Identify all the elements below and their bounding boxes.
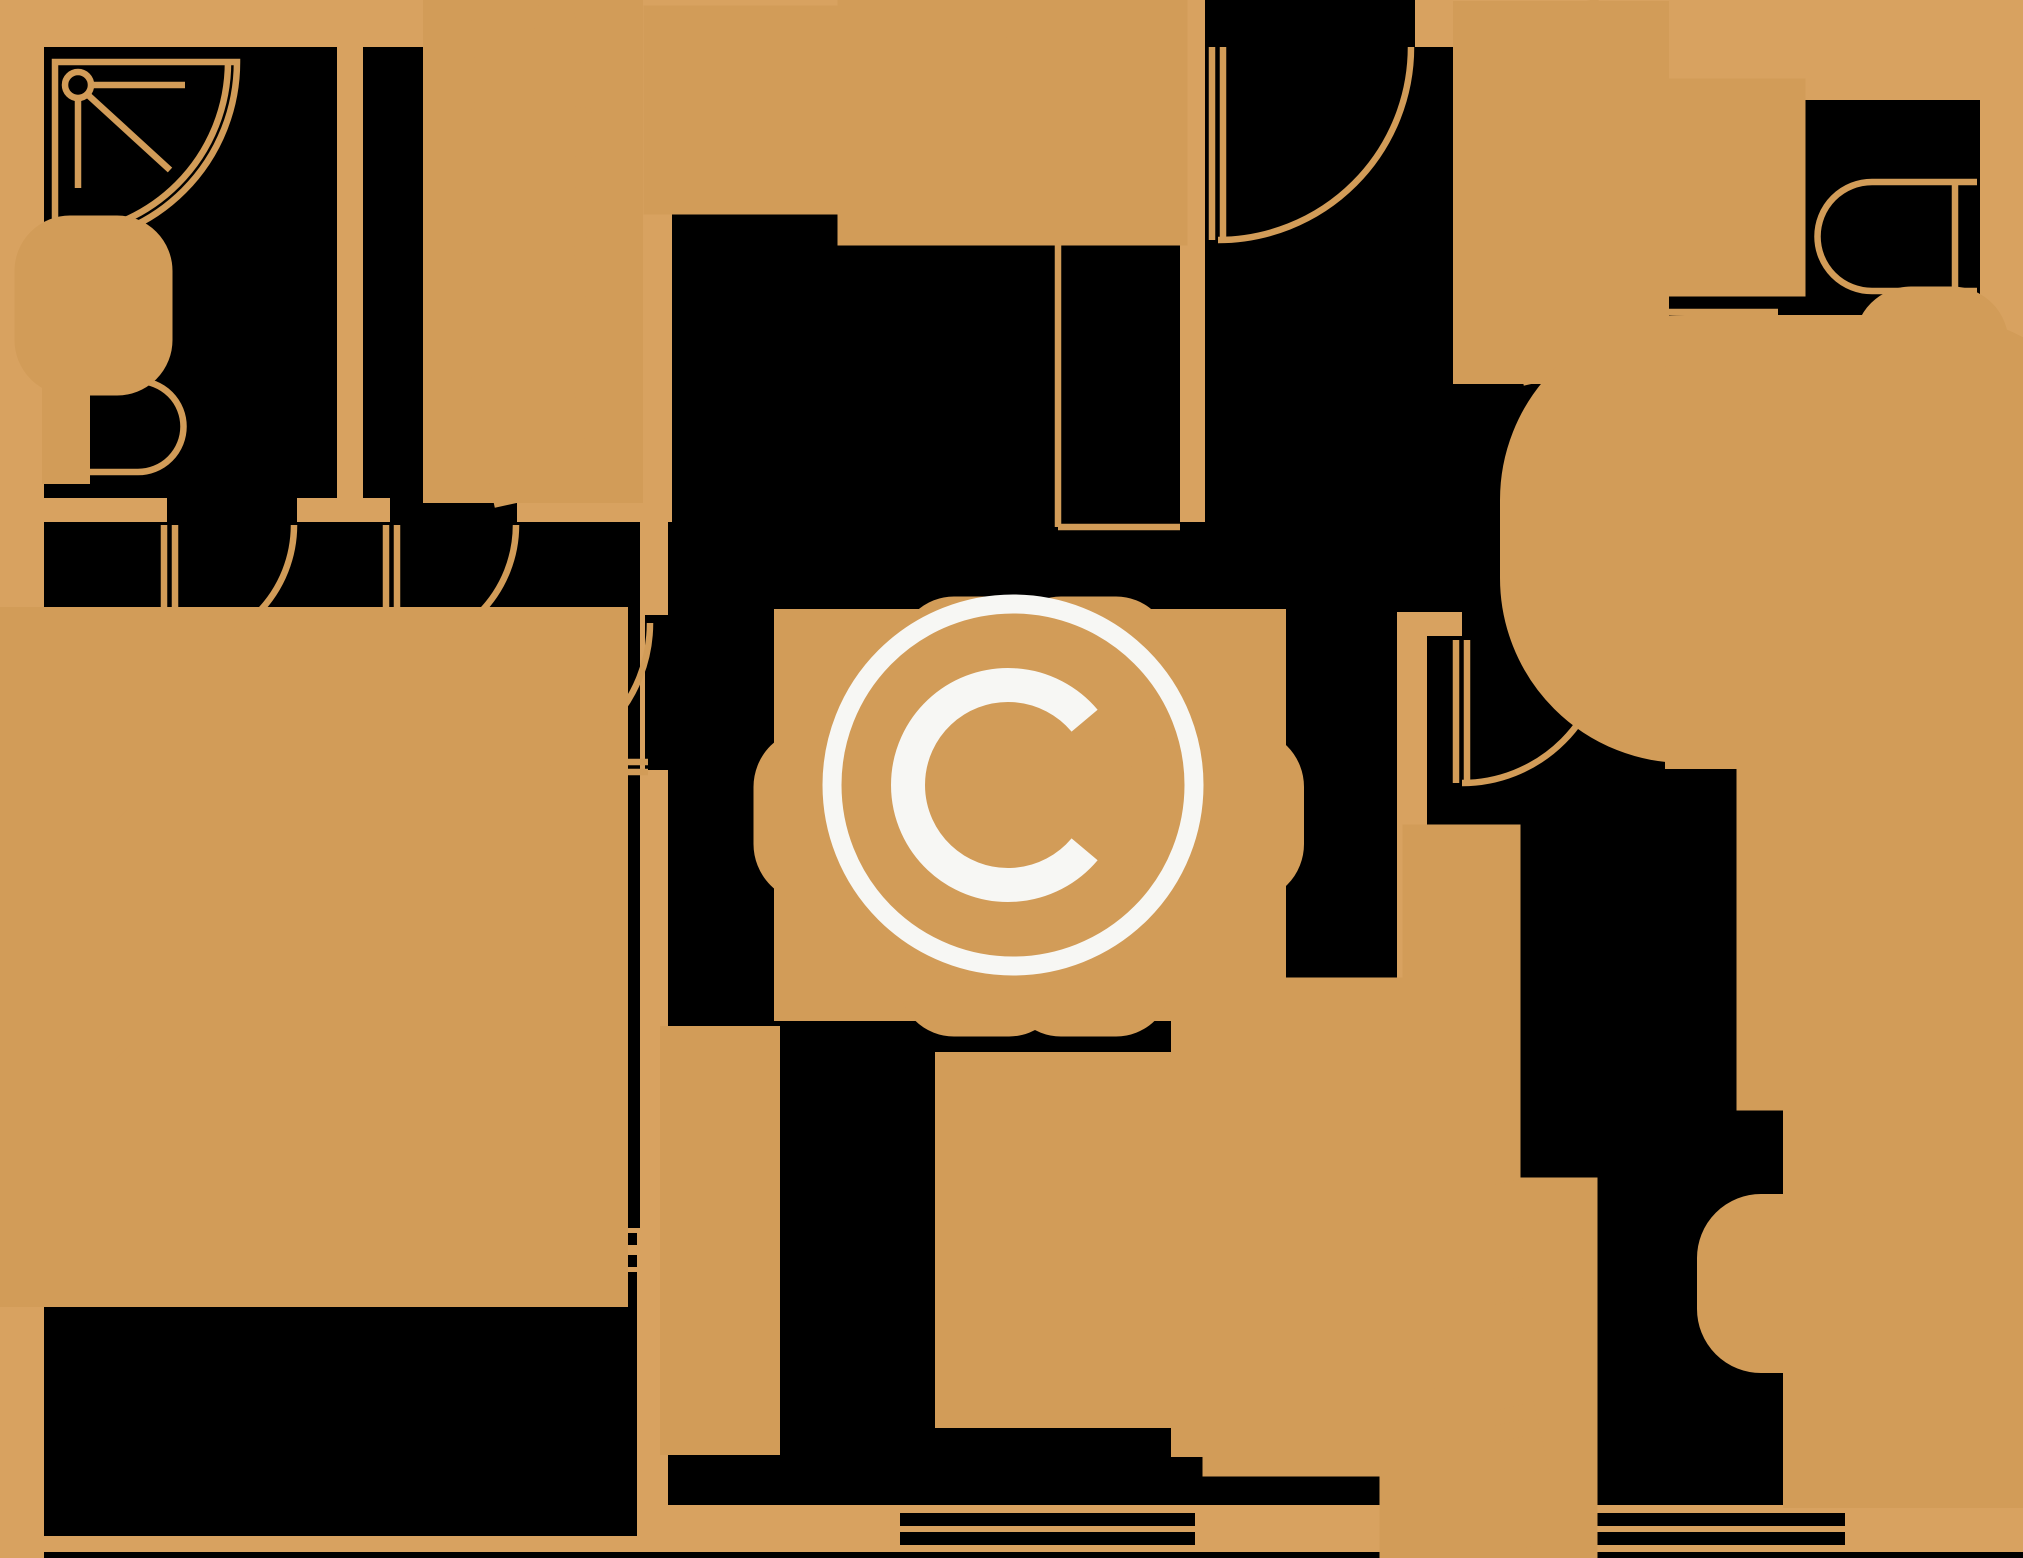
- wardrobe-closet-hanger-3-1: [483, 432, 583, 454]
- kitchen-sink-basin: [1011, 71, 1086, 139]
- nightstand-left-2: [49, 1125, 115, 1201]
- tv: [701, 1097, 715, 1377]
- floor-plan: [0, 0, 2023, 1558]
- toilet-topleft-tank: [54, 381, 78, 472]
- kitchen-sink-outlet: [991, 144, 1011, 154]
- window-living-2: [900, 1532, 1195, 1545]
- coffee-table: [1010, 1127, 1160, 1353]
- wardrobe-hall-hanger-2-2: [1512, 311, 1610, 333]
- entry-opening: [1205, 0, 1415, 47]
- window-bedroom-right-2: [1554, 1532, 1845, 1545]
- cabinet-tall-inner: [1443, 895, 1458, 1145]
- bathtub-inner: [1682, 490, 1940, 588]
- doorway-bathroom-topleft: [167, 498, 297, 522]
- room-balcony: [44, 1272, 637, 1536]
- wardrobe-bedroom-right-hanger-2-1: [1439, 1489, 1538, 1511]
- floor-plan-canvas: [0, 0, 2023, 1558]
- washing-machine: [1657, 128, 1756, 247]
- window-living-1: [900, 1513, 1195, 1526]
- plan-bottom-edge: [44, 1552, 2023, 1558]
- window-bedroom-right-1: [1554, 1513, 1845, 1526]
